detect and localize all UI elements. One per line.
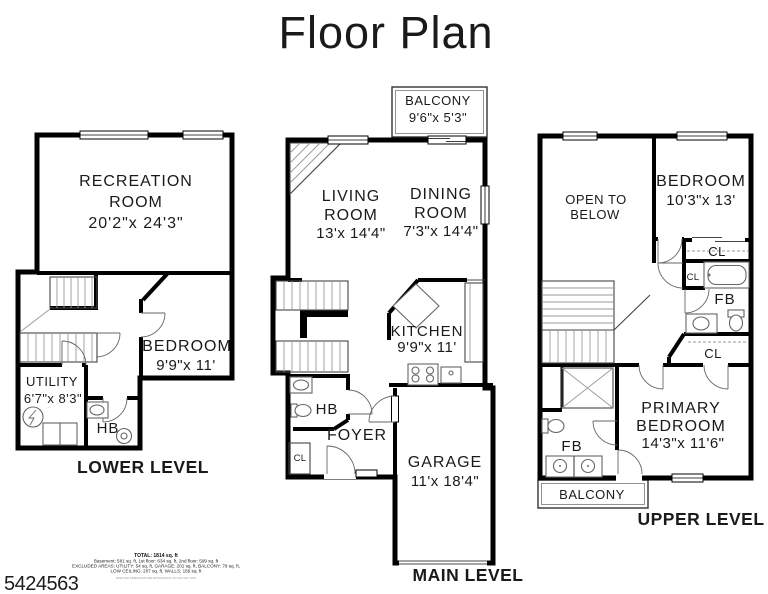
- room-label-recreation-2: ROOM: [109, 194, 163, 211]
- footer-disclaimer: SIZES AND DIMENSIONS ARE APPROXIMATE, AC…: [116, 576, 197, 580]
- kitchen-island-icon: [393, 284, 439, 328]
- main-outer-walls: [273, 140, 493, 563]
- room-dims-kitchen: 9'9"x 11': [397, 339, 456, 356]
- room-label-foyer: FOYER: [327, 427, 387, 444]
- room-dims-recreation: 20'2"x 24'3": [88, 215, 183, 232]
- front-step: [356, 470, 377, 477]
- floor-plan-image: Floor Plan RECREATION ROOM 20'2: [0, 0, 768, 594]
- water-heater-icon: [23, 407, 43, 427]
- room-label-half-bath: HB: [316, 401, 339, 418]
- room-label-closet: CL: [294, 453, 307, 464]
- room-label-closet-bedroom: CL: [708, 244, 726, 259]
- room-label-dining-2: ROOM: [414, 205, 468, 222]
- page-title: Floor Plan: [278, 7, 493, 58]
- label-open-to-below: OPEN TO: [565, 192, 627, 207]
- main-level-plan: BALCONY 9'6"x 5'3" LIVING ROOM 13'x 14'4…: [273, 87, 523, 585]
- balcony-door-opening: [616, 473, 642, 482]
- room-dims-living: 13'x 14'4": [316, 225, 385, 242]
- room-label-recreation: RECREATION: [79, 173, 193, 190]
- room-label-balcony: BALCONY: [405, 93, 471, 108]
- floor-plan-svg: Floor Plan RECREATION ROOM 20'2: [0, 0, 768, 594]
- main-staircase: [276, 281, 348, 372]
- garage-entry-threshold: [392, 396, 399, 422]
- lower-level-plan: RECREATION ROOM 20'2"x 24'3" BEDROOM 9'9…: [18, 131, 232, 477]
- toilet-icon: [542, 419, 548, 433]
- room-dims-bedroom: 10'3"x 13': [666, 192, 735, 209]
- room-label-utility: UTILITY: [26, 374, 78, 389]
- room-label-bedroom: BEDROOM: [656, 173, 746, 190]
- lower-staircase: [20, 277, 97, 362]
- footer: TOTAL: 1814 sq. ft Basement: 581 sq. ft,…: [4, 553, 240, 594]
- room-label-half-bath: HB: [97, 420, 120, 437]
- washer-icon: [43, 423, 60, 445]
- level-label-lower: LOWER LEVEL: [77, 457, 209, 477]
- room-label-closet-hall: CL: [704, 346, 722, 361]
- kitchen-counter-icon: [465, 283, 483, 362]
- room-dims-balcony: 9'6"x 5'3": [409, 110, 467, 125]
- level-label-upper: UPPER LEVEL: [637, 509, 764, 529]
- room-dims-dining: 7'3"x 14'4": [403, 223, 478, 240]
- fireplace-icon: [290, 143, 341, 194]
- room-dims-garage: 11'x 18'4": [411, 473, 479, 490]
- room-dims-utility: 6'7"x 8'3": [24, 391, 82, 406]
- room-label-full-bath-upper: FB: [714, 291, 735, 308]
- room-label-primary-2: BEDROOM: [636, 418, 726, 435]
- room-dims-primary: 14'3"x 11'6": [642, 435, 725, 452]
- footer-excluded-2: LOW CEILING: 207 sq. ft, WALLS: 156 sq. …: [111, 569, 203, 574]
- room-label-closet-small: CL: [687, 272, 700, 283]
- label-open-to-below-2: BELOW: [570, 207, 620, 222]
- upper-staircase: [542, 281, 650, 363]
- room-label-garage: GARAGE: [408, 454, 482, 471]
- upper-level-plan: OPEN TO BELOW BEDROOM 10'3"x 13' CL CL F…: [538, 132, 765, 529]
- room-label-bedroom: BEDROOM: [142, 338, 232, 355]
- photo-id: 5424563: [4, 573, 79, 594]
- stove-icon: [408, 364, 438, 385]
- room-dims-bedroom: 9'9"x 11': [156, 357, 215, 374]
- room-label-living: LIVING: [322, 188, 380, 205]
- room-label-full-bath-lower: FB: [561, 438, 582, 455]
- level-label-main: MAIN LEVEL: [413, 565, 524, 585]
- room-label-dining: DINING: [410, 186, 472, 203]
- room-label-primary: PRIMARY: [641, 400, 721, 417]
- balcony-sliding-door: [428, 136, 466, 144]
- room-label-kitchen: KITCHEN: [391, 323, 464, 340]
- dryer-icon: [60, 423, 77, 445]
- room-label-balcony: BALCONY: [559, 487, 625, 502]
- room-label-living-2: ROOM: [324, 207, 378, 224]
